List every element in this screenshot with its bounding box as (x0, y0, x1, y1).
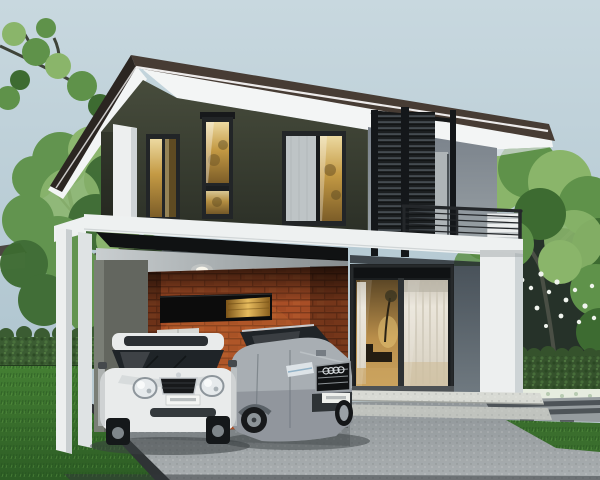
portal-post-inner (78, 232, 92, 448)
transom (352, 266, 452, 278)
hatch-sunroof (124, 336, 208, 346)
window-tall (200, 112, 235, 219)
upper-corner-door (146, 134, 180, 222)
lamp-glow (378, 316, 398, 348)
louver-panel-left (378, 114, 401, 248)
render-canvas: Photorealistic 3D rendering of a modern … (0, 0, 600, 480)
hatch-intake (150, 408, 216, 417)
glass-pane-left (356, 280, 400, 386)
accent-panel (160, 293, 272, 323)
house-render (0, 0, 600, 480)
hatch-headlight-right (201, 376, 224, 396)
entry-section (322, 250, 552, 420)
door-stile (398, 278, 404, 388)
hatch-mirror (98, 362, 107, 369)
window-wide (282, 131, 346, 226)
sedan-mirror (316, 350, 326, 356)
table-silhouette (372, 352, 392, 362)
hatch-headlight-left (134, 378, 157, 398)
lit-slot-window (226, 297, 270, 318)
hatch-badge (176, 372, 181, 377)
hatch-mirror (228, 360, 237, 367)
upper-column-shade (131, 128, 137, 222)
corner-column (480, 250, 523, 404)
glass-doors (348, 264, 458, 395)
white-hatchback (98, 333, 237, 445)
louver-post (450, 110, 456, 250)
sedan-grille (316, 362, 350, 392)
slate-wall (452, 266, 482, 392)
glass-pane-right (404, 280, 448, 386)
